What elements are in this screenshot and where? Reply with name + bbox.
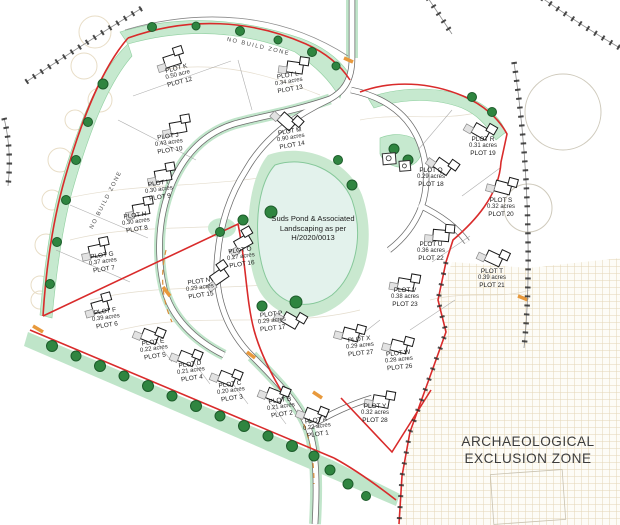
house-footprint	[209, 362, 243, 390]
site-plan-canvas: PLOT K 0.50 acre PLOT 12 PLOT L 0.34 acr…	[0, 0, 620, 525]
house-footprint	[389, 270, 421, 294]
house-footprint	[160, 114, 192, 138]
house-footprint	[425, 148, 460, 180]
house-footprint	[381, 331, 414, 357]
site-plan-drawing	[0, 0, 620, 525]
house-footprint	[278, 54, 309, 77]
archaeological-zone-hatch	[398, 258, 620, 525]
house-footprint	[79, 237, 111, 262]
house-footprint	[424, 223, 455, 244]
house-footprint	[123, 196, 155, 220]
house-footprint	[169, 342, 203, 370]
house-footprint	[333, 319, 366, 345]
suds-pond	[248, 151, 369, 317]
house-footprint	[485, 172, 518, 198]
